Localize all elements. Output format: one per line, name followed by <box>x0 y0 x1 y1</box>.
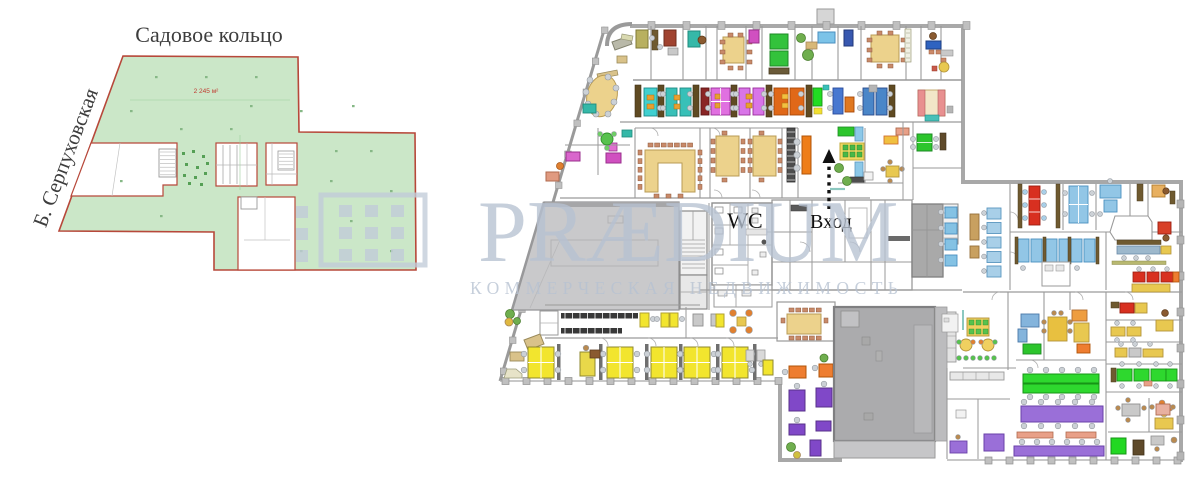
svg-text:КОММЕРЧЕСКАЯ НЕДВИЖИМОСТЬ: КОММЕРЧЕСКАЯ НЕДВИЖИМОСТЬ <box>470 278 903 298</box>
svg-text:Садовое кольцо: Садовое кольцо <box>135 22 282 47</box>
svg-text:PRÆDIUM: PRÆDIUM <box>478 184 899 281</box>
svg-text:2 245 м²: 2 245 м² <box>194 88 220 95</box>
